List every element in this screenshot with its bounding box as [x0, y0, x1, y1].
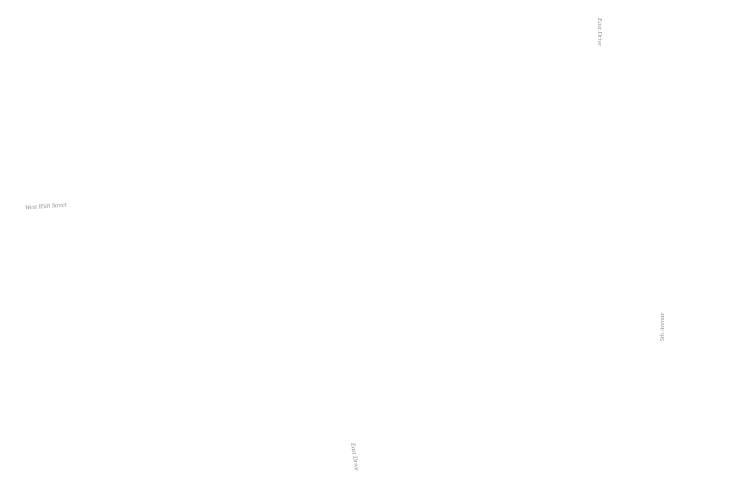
street-label-east-drive-bottom: East Drive	[349, 441, 360, 471]
street-label-east-drive-top: East Drive	[596, 17, 603, 46]
street-label-west-85th: West 85th Street	[25, 202, 67, 212]
site-plan-page: West 85th Street East Drive East Drive 5…	[0, 0, 750, 500]
site-plan-canvas: West 85th Street East Drive East Drive 5…	[0, 0, 750, 500]
street-label-fifth-avenue: 5th Avenue	[659, 313, 666, 342]
